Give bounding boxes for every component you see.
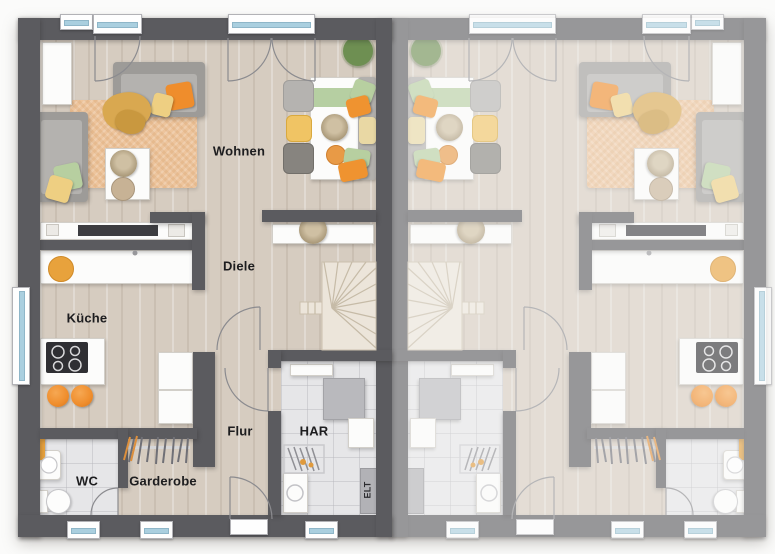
decor-item: [599, 224, 616, 237]
window-kitchen: [12, 287, 30, 385]
food-plate: [48, 256, 74, 282]
window-glass: [232, 22, 311, 28]
window-glass: [646, 22, 687, 28]
window-wc: [684, 521, 717, 539]
har-storage-box: [323, 378, 365, 420]
wall-kitchen-flur: [569, 352, 591, 467]
entrance-door: [516, 519, 554, 535]
dining-chair-gray: [283, 80, 314, 112]
kitchen-half-wall: [591, 240, 744, 250]
wall-party: [376, 18, 392, 537]
food-plate: [710, 256, 736, 282]
bench-pad-yellow: [408, 117, 425, 144]
wall-har-left: [503, 411, 516, 515]
har-shelf: [290, 364, 333, 376]
table-plant: [321, 114, 348, 141]
room-label-wc: WC: [76, 475, 98, 488]
window-glass: [688, 528, 713, 534]
fridge-split: [592, 389, 625, 391]
decor-tray: [111, 177, 135, 201]
wall-kitchen-flur: [193, 352, 215, 467]
window-glass: [473, 22, 552, 28]
wall-living-hall-right: [262, 210, 376, 222]
tv-screen: [78, 225, 158, 236]
window-wardrobe: [611, 521, 644, 539]
potted-plant: [411, 36, 441, 66]
room-label-har: HAR: [300, 425, 329, 438]
floor-plan-page: Wohnen Diele Küche Flur HAR WC Garderobe…: [0, 0, 775, 554]
room-label-diele: Diele: [223, 260, 255, 273]
window-glass: [759, 291, 765, 381]
window-glass: [695, 20, 720, 26]
bar-stool: [71, 385, 93, 407]
floor-plan: Wohnen Diele Küche Flur HAR WC Garderobe…: [18, 18, 766, 537]
entrance-door: [230, 519, 268, 535]
window-top-fixed: [60, 14, 93, 30]
wall-stairs-har: [280, 350, 392, 361]
potted-plant: [343, 36, 373, 66]
window-glass: [71, 528, 96, 534]
french-door-double: [469, 14, 556, 34]
kitchen-half-wall: [40, 240, 193, 250]
window-glass: [19, 291, 25, 381]
wall-har-left-top: [268, 350, 281, 368]
tall-cabinet: [712, 42, 742, 105]
fridge-split: [159, 389, 192, 391]
room-label-elt: ELT: [364, 482, 373, 499]
wardrobe-rod: [128, 446, 190, 449]
dining-chair-yellow: [286, 115, 312, 142]
decor-tray: [649, 177, 673, 201]
wall-living-hall-right: [408, 210, 522, 222]
dining-chair-dark: [283, 143, 314, 174]
bar-stool: [47, 385, 69, 407]
decor-item: [725, 224, 738, 236]
room-label-kueche: Küche: [67, 312, 108, 325]
window-glass: [309, 528, 334, 534]
wall-wc-wardrobe: [118, 428, 128, 488]
har-cabinet: [410, 418, 436, 448]
wall-har-left-top: [503, 350, 516, 368]
wardrobe-rod: [594, 446, 656, 449]
dining-chair-dark: [470, 143, 501, 174]
window-glass: [97, 22, 138, 28]
fridge: [158, 352, 193, 424]
room-label-garderobe: Garderobe: [129, 475, 197, 488]
wall-wc-wardrobe: [656, 428, 666, 488]
elt-distribution-panel: [406, 468, 424, 514]
window-wc: [67, 521, 100, 539]
window-kitchen: [754, 287, 772, 385]
window-har: [446, 521, 479, 539]
decor-item: [46, 224, 59, 236]
wall-kitchen-hall: [192, 212, 205, 290]
cooktop: [46, 342, 88, 373]
window-wardrobe: [140, 521, 173, 539]
washing-machine: [283, 473, 308, 513]
window-glass: [144, 528, 169, 534]
toilet-bowl: [713, 489, 738, 514]
cooktop: [696, 342, 738, 373]
window-glass: [64, 20, 89, 26]
room-label-flur: Flur: [227, 425, 252, 438]
decor-item: [168, 224, 185, 237]
wall-stairs-har: [392, 350, 504, 361]
har-shelf: [451, 364, 494, 376]
tv-screen: [626, 225, 706, 236]
bar-stool: [715, 385, 737, 407]
window-har: [305, 521, 338, 539]
wall-har-left: [268, 411, 281, 515]
washing-machine: [476, 473, 501, 513]
bench-pad-yellow: [359, 117, 376, 144]
wall-party: [392, 18, 408, 537]
har-cabinet: [348, 418, 374, 448]
toilet-bowl: [46, 489, 71, 514]
window-top-fixed: [691, 14, 724, 30]
dining-chair-yellow: [472, 115, 498, 142]
unit-right-mirrored: [392, 18, 766, 537]
french-door-double: [228, 14, 315, 34]
dried-plant: [110, 150, 137, 177]
dried-plant: [647, 150, 674, 177]
har-storage-box: [419, 378, 461, 420]
window-glass: [615, 528, 640, 534]
window-glass: [450, 528, 475, 534]
wall-exterior-left: [18, 18, 40, 537]
fridge: [591, 352, 626, 424]
dining-chair-gray: [470, 80, 501, 112]
table-plant: [436, 114, 463, 141]
tall-cabinet: [42, 42, 72, 105]
wall-kitchen-hall: [579, 212, 592, 290]
wall-exterior-left: [744, 18, 766, 537]
room-label-wohnen: Wohnen: [213, 145, 265, 158]
bar-stool: [691, 385, 713, 407]
window-door-living: [93, 14, 142, 34]
window-door-living: [642, 14, 691, 34]
unit-left: Wohnen Diele Küche Flur HAR WC Garderobe…: [18, 18, 392, 537]
